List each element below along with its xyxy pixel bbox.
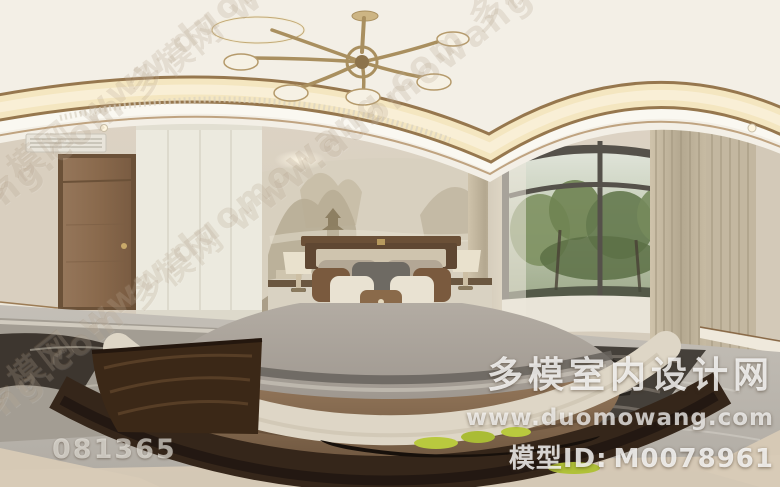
watermark-brand-block: 多模室内设计网 www.duomowang.com 模型ID:M0078961 [466, 346, 774, 475]
watermark-scene-id: 081365 [52, 434, 177, 465]
watermark-site-name: 多模室内设计网 [487, 346, 774, 398]
wardrobe [136, 118, 262, 322]
door-handle [121, 243, 127, 249]
bedroom-door [58, 154, 136, 310]
model-id-value: M0078961 [613, 444, 774, 474]
ac-vent [26, 134, 106, 152]
watermark-model-id: 模型ID:M0078961 [509, 438, 774, 475]
throw-blanket [92, 340, 262, 434]
model-id-label: 模型ID: [509, 444, 608, 474]
watermark-site-url: www.duomowang.com [466, 405, 774, 431]
downlight [748, 124, 756, 132]
downlight [101, 125, 108, 132]
panorama-bedroom-image: www.duomowang.com 多模网 www.duomowang.com … [0, 0, 780, 487]
